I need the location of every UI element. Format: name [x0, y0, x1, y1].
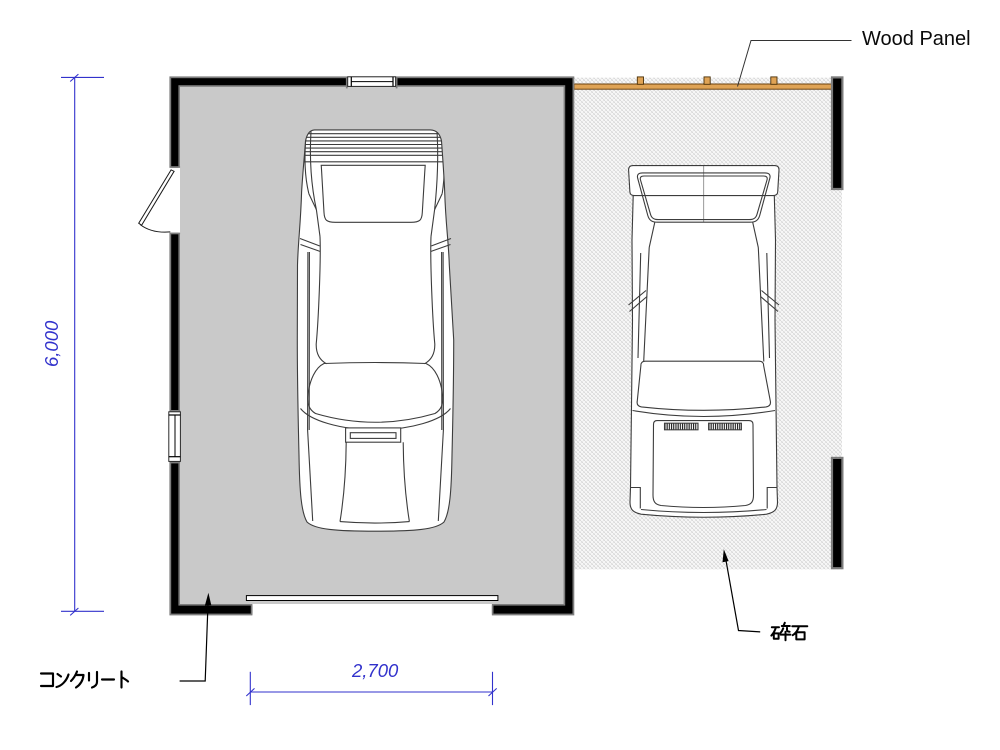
svg-text:2,700: 2,700 [351, 660, 399, 681]
svg-text:6,000: 6,000 [41, 320, 62, 367]
svg-text:Wood Panel: Wood Panel [862, 28, 971, 50]
